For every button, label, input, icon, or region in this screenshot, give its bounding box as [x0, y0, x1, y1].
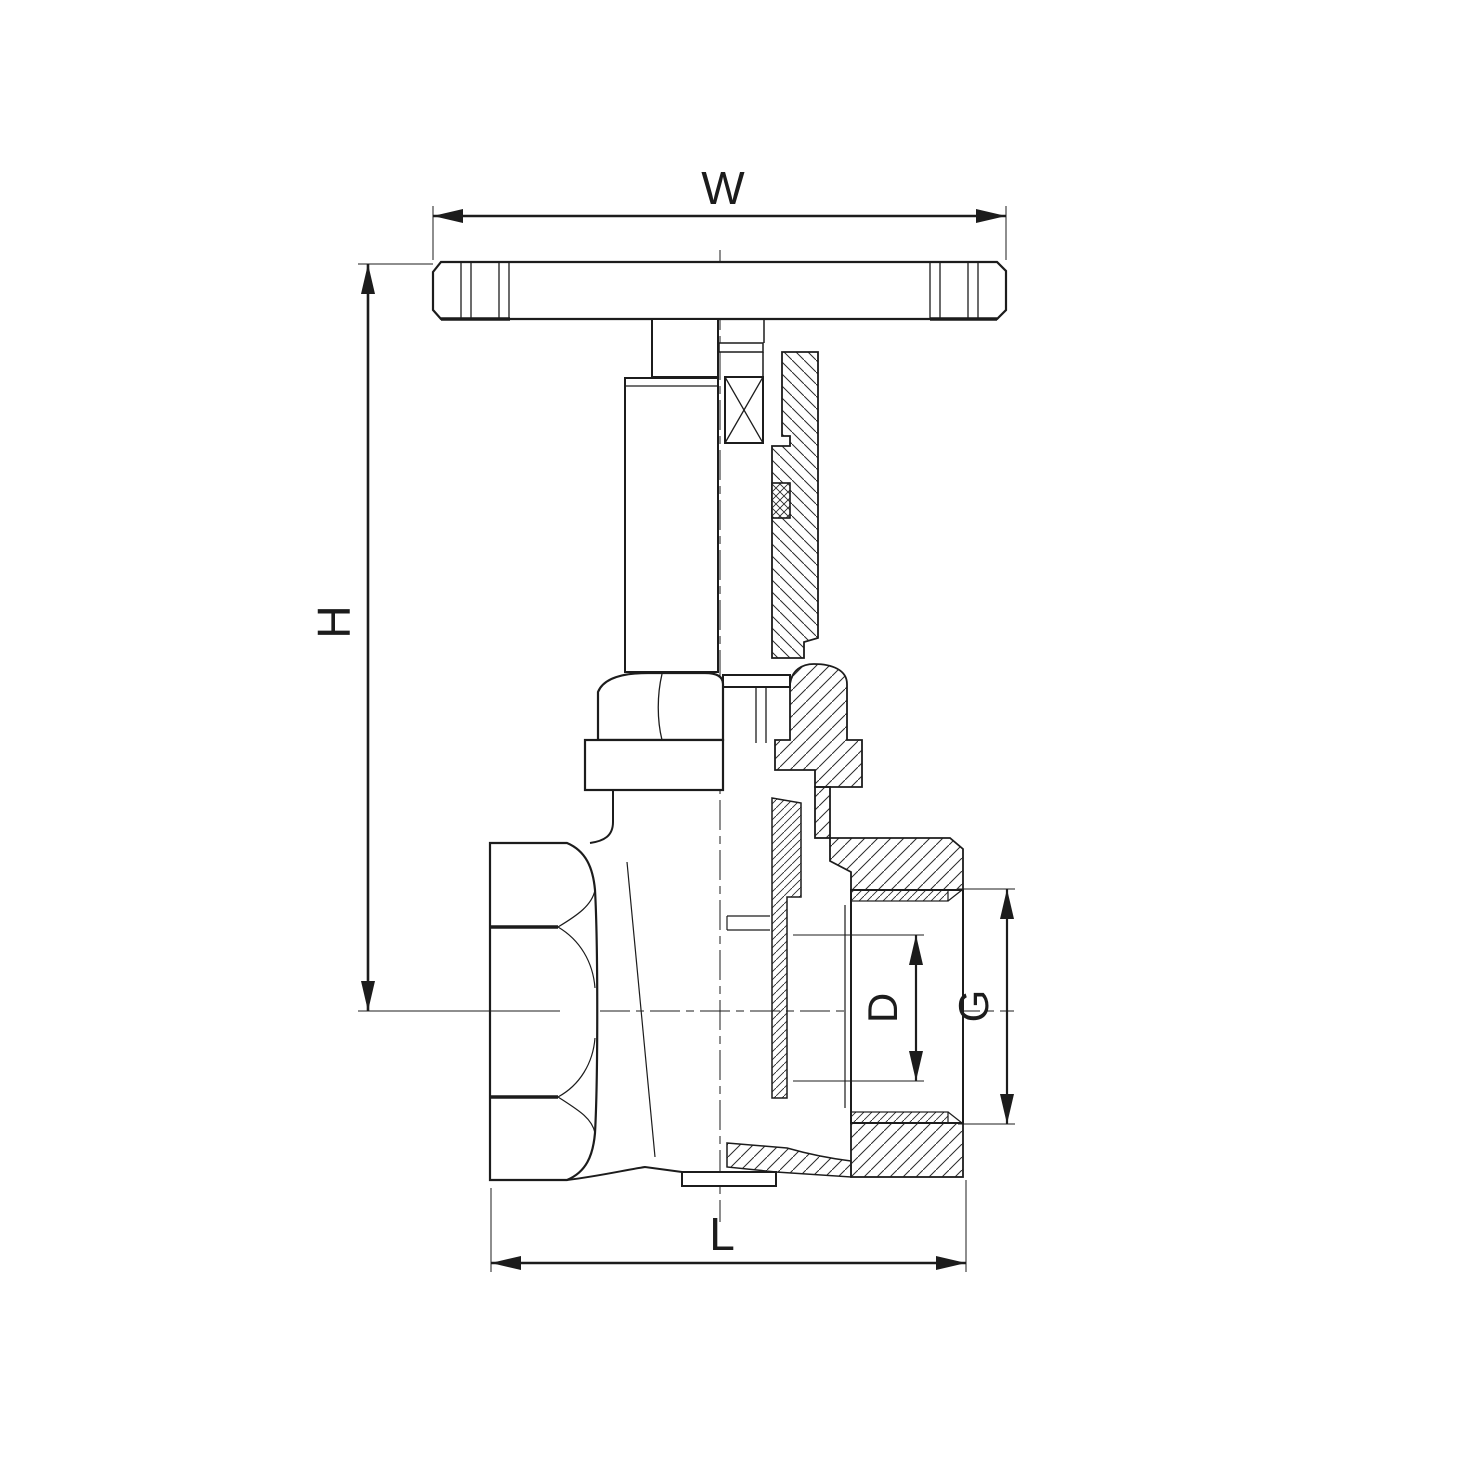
wheel-hub	[652, 319, 718, 377]
stem-washer	[719, 343, 763, 352]
handwheel-rim	[433, 262, 1006, 319]
bonnet-flange	[585, 740, 723, 790]
thread-band-top	[851, 890, 948, 901]
gland-plate	[723, 675, 790, 687]
packing-ring	[772, 483, 790, 518]
dim-label-l: L	[709, 1208, 735, 1260]
stem-housing	[625, 378, 718, 672]
body-bottom-right	[851, 1123, 963, 1177]
body-foot	[682, 1172, 776, 1186]
stem-nut-bearing	[725, 377, 763, 443]
technical-drawing-page: W H D G L	[0, 0, 1471, 1471]
body-neck-wall	[815, 787, 830, 838]
dim-label-g: G	[950, 990, 997, 1023]
handwheel	[433, 262, 1006, 319]
thread-band-bottom	[851, 1112, 948, 1123]
dim-label-d: D	[859, 993, 906, 1023]
dim-label-h: H	[308, 605, 360, 638]
paper	[0, 0, 1471, 1471]
dim-label-w: W	[701, 162, 745, 214]
gate-valve-drawing: W H D G L	[0, 0, 1471, 1471]
